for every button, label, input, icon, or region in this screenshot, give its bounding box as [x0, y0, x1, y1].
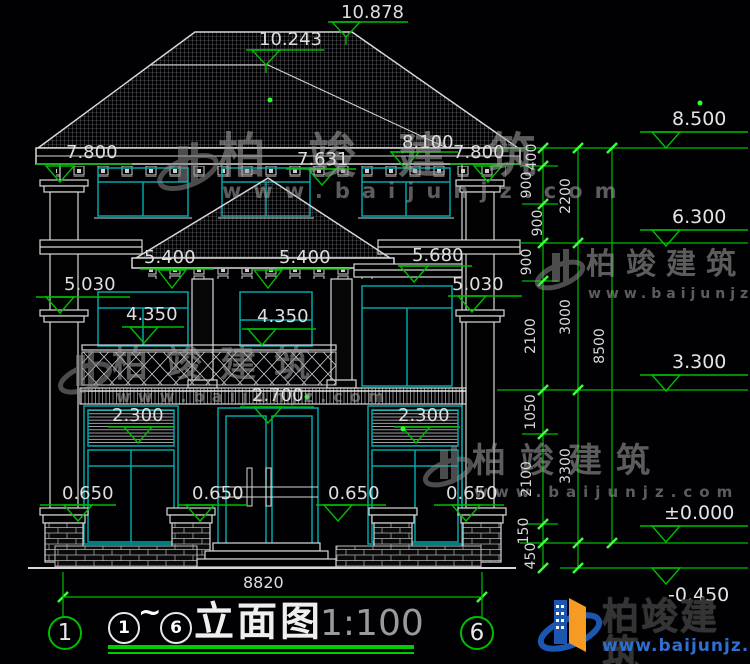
- dim-2100-b: 2100: [520, 461, 534, 497]
- brand-logo-icon: [536, 598, 603, 656]
- elev-label-ridge-2nd: 10.243: [259, 31, 322, 49]
- drawing-scale: 1:100: [320, 606, 424, 642]
- title-underline: [108, 645, 414, 654]
- title-circled-1: 1: [108, 612, 140, 644]
- watermark-brand-left: 柏竣建筑: [112, 347, 328, 383]
- left-column: [40, 180, 88, 508]
- watermark-url-right: www.baijunjz.com: [588, 287, 750, 301]
- elev-label-louver-right: 2.300: [398, 407, 450, 425]
- level-3300: 3.300: [672, 353, 726, 372]
- axis-bubble-6: 6: [460, 616, 494, 650]
- elev-label-porch-eave-right: 5.400: [279, 249, 331, 267]
- elev-label-floor2-left: 5.030: [64, 276, 116, 294]
- dim-450: 450: [524, 543, 538, 570]
- entrance-double-door: [218, 408, 318, 554]
- elev-label-eave-top: 8.100: [402, 134, 454, 152]
- elev-label-ridge-top: 10.878: [341, 4, 404, 22]
- elev-label-sill1-4: 0.650: [446, 485, 498, 503]
- entrance-steps: [197, 543, 336, 567]
- cad-elevation-drawing: 10.878 10.243 7.800 8.100 7.800 7.631 5.…: [0, 0, 750, 664]
- drawing-title: 立面图: [194, 602, 323, 642]
- level-6300: 6.300: [672, 208, 726, 227]
- elev-label-bay-ledge: 5.680: [412, 247, 464, 265]
- dim-900-b: 900: [531, 210, 545, 237]
- level-0000: ±0.000: [664, 504, 734, 523]
- elev-label-sill1-3: 0.650: [328, 485, 380, 503]
- dim-1050: 1050: [524, 394, 538, 430]
- dim-label-overall-width: 8820: [243, 575, 284, 591]
- title-tilde: ~: [138, 598, 161, 626]
- elev-label-floor2-right: 5.030: [452, 276, 504, 294]
- axis-bubble-1: 1: [48, 616, 82, 650]
- watermark-brand-right: 柏竣建筑: [586, 250, 746, 280]
- elev-label-sill1-1: 0.650: [62, 485, 114, 503]
- dim-900-a: 900: [520, 172, 534, 199]
- dim-2200: 2200: [559, 178, 573, 214]
- dim-400: 400: [525, 144, 539, 171]
- dim-150: 150: [517, 518, 531, 545]
- dim-8500: 8500: [593, 328, 607, 364]
- title-circled-6: 6: [160, 612, 192, 644]
- elev-label-porch-eave-left: 5.400: [144, 249, 196, 267]
- elev-label-louver-left: 2.300: [112, 407, 164, 425]
- dim-3000: 3000: [559, 299, 573, 335]
- dim-2100-a: 2100: [524, 318, 538, 354]
- level-8500: 8.500: [672, 110, 726, 129]
- elev-label-eave-left: 7.800: [66, 144, 118, 162]
- elev-label-eave-right: 7.800: [453, 144, 505, 162]
- watermark-url-mid: www.baijunjz.com: [474, 485, 739, 500]
- elev-label-sill2-left: 4.350: [126, 306, 178, 324]
- drawing-linework: [0, 0, 750, 664]
- elev-label-sill1-2: 0.650: [192, 485, 244, 503]
- dim-3300: 3300: [559, 448, 573, 484]
- elev-label-porch-peak: 7.631: [297, 151, 349, 169]
- dim-900-c: 900: [520, 249, 534, 276]
- elev-label-sill2-center: 4.350: [257, 308, 309, 326]
- logo-url-text: www.baijunjz.com: [602, 638, 750, 655]
- elev-label-balcony: 2.700: [252, 387, 304, 405]
